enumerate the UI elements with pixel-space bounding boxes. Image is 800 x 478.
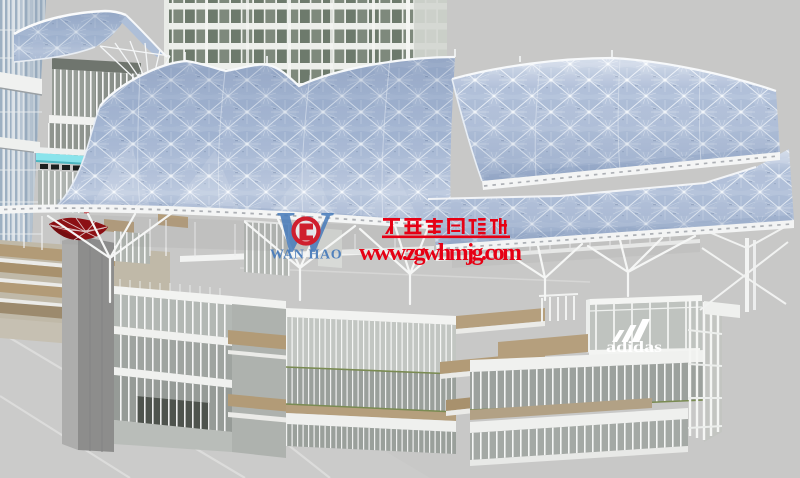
svg-text:WAN HAO: WAN HAO	[270, 248, 344, 263]
svg-text:www.zgwhmjg.com: www.zgwhmjg.com	[359, 240, 522, 266]
